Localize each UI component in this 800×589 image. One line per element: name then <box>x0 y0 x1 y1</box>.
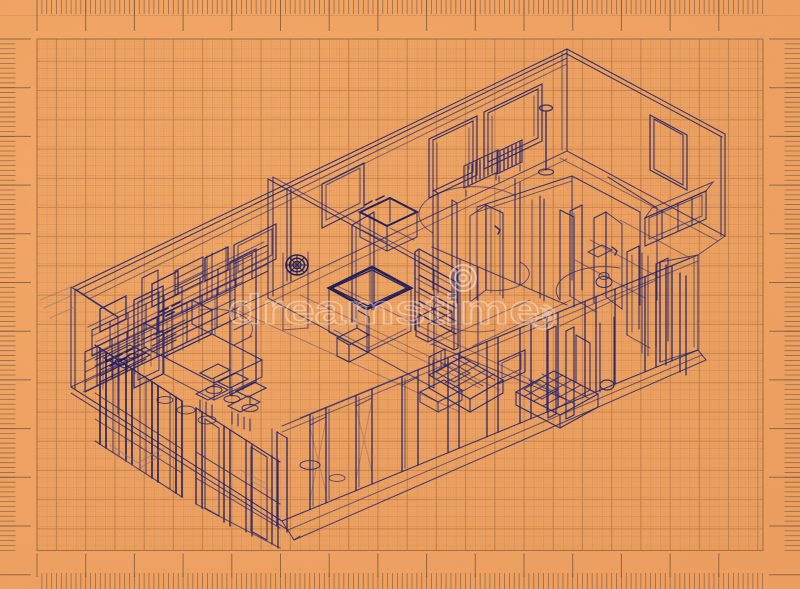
svg-text:dreamstime: dreamstime <box>228 286 540 333</box>
svg-text:R: R <box>546 310 553 320</box>
